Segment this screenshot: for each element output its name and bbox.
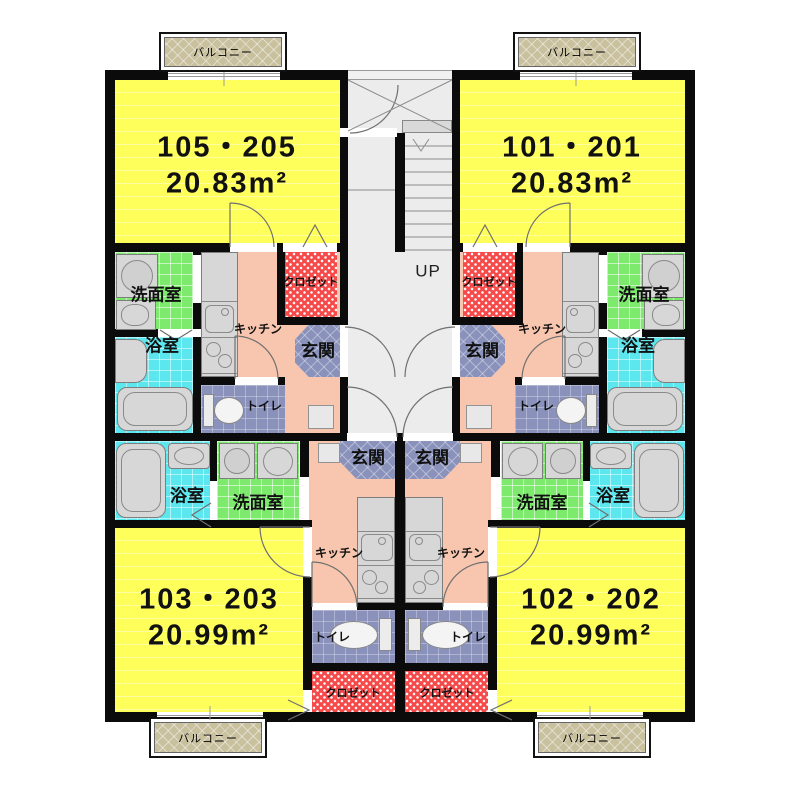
entrance-opening bbox=[348, 70, 452, 80]
door-opening bbox=[522, 377, 565, 385]
unit-101-201-area: 20.83m² bbox=[511, 170, 633, 199]
bathtub-ul bbox=[117, 387, 193, 431]
wall bbox=[395, 133, 405, 252]
wall bbox=[452, 80, 460, 441]
washroom-label-ur: 洗面室 bbox=[619, 287, 670, 304]
balcony-bottom-left: バルコニー bbox=[149, 717, 267, 758]
door-opening bbox=[583, 481, 590, 520]
door-opening bbox=[303, 527, 312, 577]
unit-103-203-area: 20.99m² bbox=[148, 622, 270, 651]
door-opening bbox=[312, 603, 357, 610]
vanity-sink-lr bbox=[502, 443, 543, 479]
bath-label-lr: 浴室 bbox=[596, 488, 630, 505]
door-opening bbox=[340, 325, 348, 377]
balcony-bottom-right: バルコニー bbox=[533, 717, 651, 758]
door-opening bbox=[300, 477, 309, 520]
entrance-label-lr: 玄関 bbox=[415, 450, 449, 467]
bath-label-ll: 浴室 bbox=[170, 488, 204, 505]
stair-landing-opening bbox=[340, 128, 397, 137]
wall bbox=[491, 441, 500, 477]
balcony-label: バルコニー bbox=[193, 44, 253, 60]
door-opening bbox=[347, 433, 397, 441]
kitchen-counter-ul bbox=[201, 252, 238, 377]
burner-icon bbox=[424, 570, 439, 585]
closet-label-ul: クロゼット bbox=[284, 278, 339, 289]
unit-102-202-area: 20.99m² bbox=[530, 622, 652, 651]
shower-panel-ul bbox=[115, 339, 147, 383]
kitchen-label-ur: キッチン bbox=[518, 323, 566, 335]
wall bbox=[105, 520, 312, 528]
burner-icon bbox=[568, 354, 582, 368]
washroom-label-lr: 洗面室 bbox=[517, 495, 568, 512]
door-opening bbox=[599, 255, 607, 303]
door-opening bbox=[303, 690, 312, 712]
balcony-label: バルコニー bbox=[562, 730, 622, 746]
kitchen-label-ul: キッチン bbox=[234, 323, 282, 335]
door-opening bbox=[230, 243, 277, 252]
vanity-sink-ll bbox=[257, 443, 298, 479]
stairs-up-label: UP bbox=[415, 263, 441, 280]
unit-105-205-area: 20.83m² bbox=[166, 170, 288, 199]
kitchen-counter-ur bbox=[562, 252, 599, 377]
balcony-label: バルコニー bbox=[178, 730, 238, 746]
balcony-top-left: バルコニー bbox=[159, 32, 287, 72]
door-opening bbox=[193, 255, 201, 303]
wall bbox=[395, 441, 405, 712]
door-opening bbox=[488, 690, 497, 712]
bathtub-ur bbox=[607, 387, 683, 431]
vanity-sink-ur bbox=[644, 300, 684, 330]
wall bbox=[452, 317, 523, 325]
toilet-label-ur: トイレ bbox=[518, 400, 554, 412]
entrance-label-ur: 玄関 bbox=[465, 343, 499, 360]
wall bbox=[300, 441, 309, 477]
toilet-tank-icon bbox=[586, 394, 597, 427]
kitchen-label-lr: キッチン bbox=[437, 547, 485, 559]
door-opening bbox=[210, 481, 217, 520]
burner-icon bbox=[375, 581, 388, 594]
toilet-ur bbox=[555, 394, 597, 427]
kitchen-sink-icon bbox=[361, 534, 393, 561]
door-opening bbox=[235, 377, 278, 385]
burner-icon bbox=[206, 342, 221, 357]
kitchen-label-ll: キッチン bbox=[315, 547, 363, 559]
toilet-bowl-icon bbox=[214, 397, 244, 424]
closet-label-ur: クロゼット bbox=[462, 278, 517, 289]
washer-drum-icon bbox=[224, 448, 250, 474]
burner-icon bbox=[362, 570, 377, 585]
bathtub-inner bbox=[121, 449, 161, 512]
toilet-tank-icon bbox=[379, 618, 392, 651]
genkan-step-ll bbox=[318, 443, 340, 463]
toilet-label-ul: トイレ bbox=[246, 400, 282, 412]
washroom-label-ul: 洗面室 bbox=[131, 287, 182, 304]
basin-icon bbox=[508, 447, 538, 476]
wall bbox=[210, 441, 217, 481]
burner-icon bbox=[413, 581, 426, 594]
unit-102-202-label: 102・202 bbox=[521, 586, 661, 615]
washing-machine-ll bbox=[219, 443, 255, 479]
toilet-ul bbox=[203, 394, 245, 427]
floor-plan: バルコニー バルコニー バルコニー バルコニー bbox=[0, 0, 800, 800]
basin-icon bbox=[596, 447, 626, 465]
wall bbox=[277, 252, 285, 325]
door-opening bbox=[452, 325, 460, 377]
wall bbox=[312, 663, 397, 671]
genkan-step-ur bbox=[466, 405, 492, 429]
faucet-icon bbox=[415, 537, 423, 545]
wall bbox=[515, 252, 523, 325]
toilet-label-lr: トイレ bbox=[450, 631, 486, 643]
burner-icon bbox=[578, 342, 593, 357]
basin-icon bbox=[121, 304, 149, 326]
bath-label-ul: 浴室 bbox=[145, 338, 179, 355]
closet-label-ll: クロゼット bbox=[326, 689, 381, 700]
door-opening bbox=[488, 527, 497, 577]
vanity-sink-ul bbox=[116, 300, 156, 330]
wall bbox=[488, 520, 695, 528]
faucet-icon bbox=[378, 537, 386, 545]
faucet-icon bbox=[570, 308, 578, 316]
door-opening bbox=[463, 243, 517, 252]
entrance-label-ll: 玄関 bbox=[351, 450, 385, 467]
genkan-step-lr bbox=[460, 443, 482, 463]
wall bbox=[105, 433, 695, 441]
door-opening bbox=[403, 433, 453, 441]
bath-label-ur: 浴室 bbox=[621, 338, 655, 355]
wall bbox=[583, 441, 590, 481]
shower-panel-ur bbox=[653, 339, 685, 383]
bathtub-inner bbox=[639, 449, 679, 512]
toilet-tank-icon bbox=[408, 618, 421, 651]
balcony-top-right: バルコニー bbox=[513, 32, 641, 72]
basin-icon bbox=[652, 304, 680, 326]
toilet-label-ll: トイレ bbox=[314, 631, 350, 643]
bath-sink-lr bbox=[590, 443, 632, 469]
bathtub-lr bbox=[634, 443, 684, 518]
unit-101-201-label: 101・201 bbox=[502, 134, 642, 163]
wall bbox=[685, 70, 695, 722]
entrance-label-ul: 玄関 bbox=[301, 343, 335, 360]
basin-icon bbox=[263, 447, 293, 476]
door-opening bbox=[283, 243, 337, 252]
door-opening bbox=[523, 243, 570, 252]
unit-103-203-label: 103・203 bbox=[139, 586, 279, 615]
burner-icon bbox=[218, 354, 232, 368]
balcony-label: バルコニー bbox=[547, 44, 607, 60]
unit-105-205-label: 105・205 bbox=[157, 134, 297, 163]
door-opening bbox=[443, 603, 488, 610]
wall bbox=[403, 663, 488, 671]
washroom-label-ll: 洗面室 bbox=[233, 495, 284, 512]
closet-label-lr: クロゼット bbox=[420, 689, 475, 700]
basin-icon bbox=[174, 447, 204, 465]
toilet-tank-icon bbox=[203, 394, 214, 427]
faucet-icon bbox=[221, 308, 229, 316]
bathtub-inner bbox=[123, 392, 187, 426]
stair-landing-edge bbox=[402, 120, 452, 133]
genkan-step-ul bbox=[308, 405, 334, 429]
washer-drum-icon bbox=[550, 448, 576, 474]
kitchen-sink-icon bbox=[205, 305, 234, 333]
bathtub-ll bbox=[116, 443, 166, 518]
bath-sink-ll bbox=[168, 443, 210, 469]
bathtub-inner bbox=[613, 392, 677, 426]
door-opening bbox=[491, 477, 500, 520]
toilet-bowl-icon bbox=[556, 397, 586, 424]
washing-machine-lr bbox=[545, 443, 581, 479]
wall bbox=[277, 317, 348, 325]
wall bbox=[105, 70, 115, 722]
